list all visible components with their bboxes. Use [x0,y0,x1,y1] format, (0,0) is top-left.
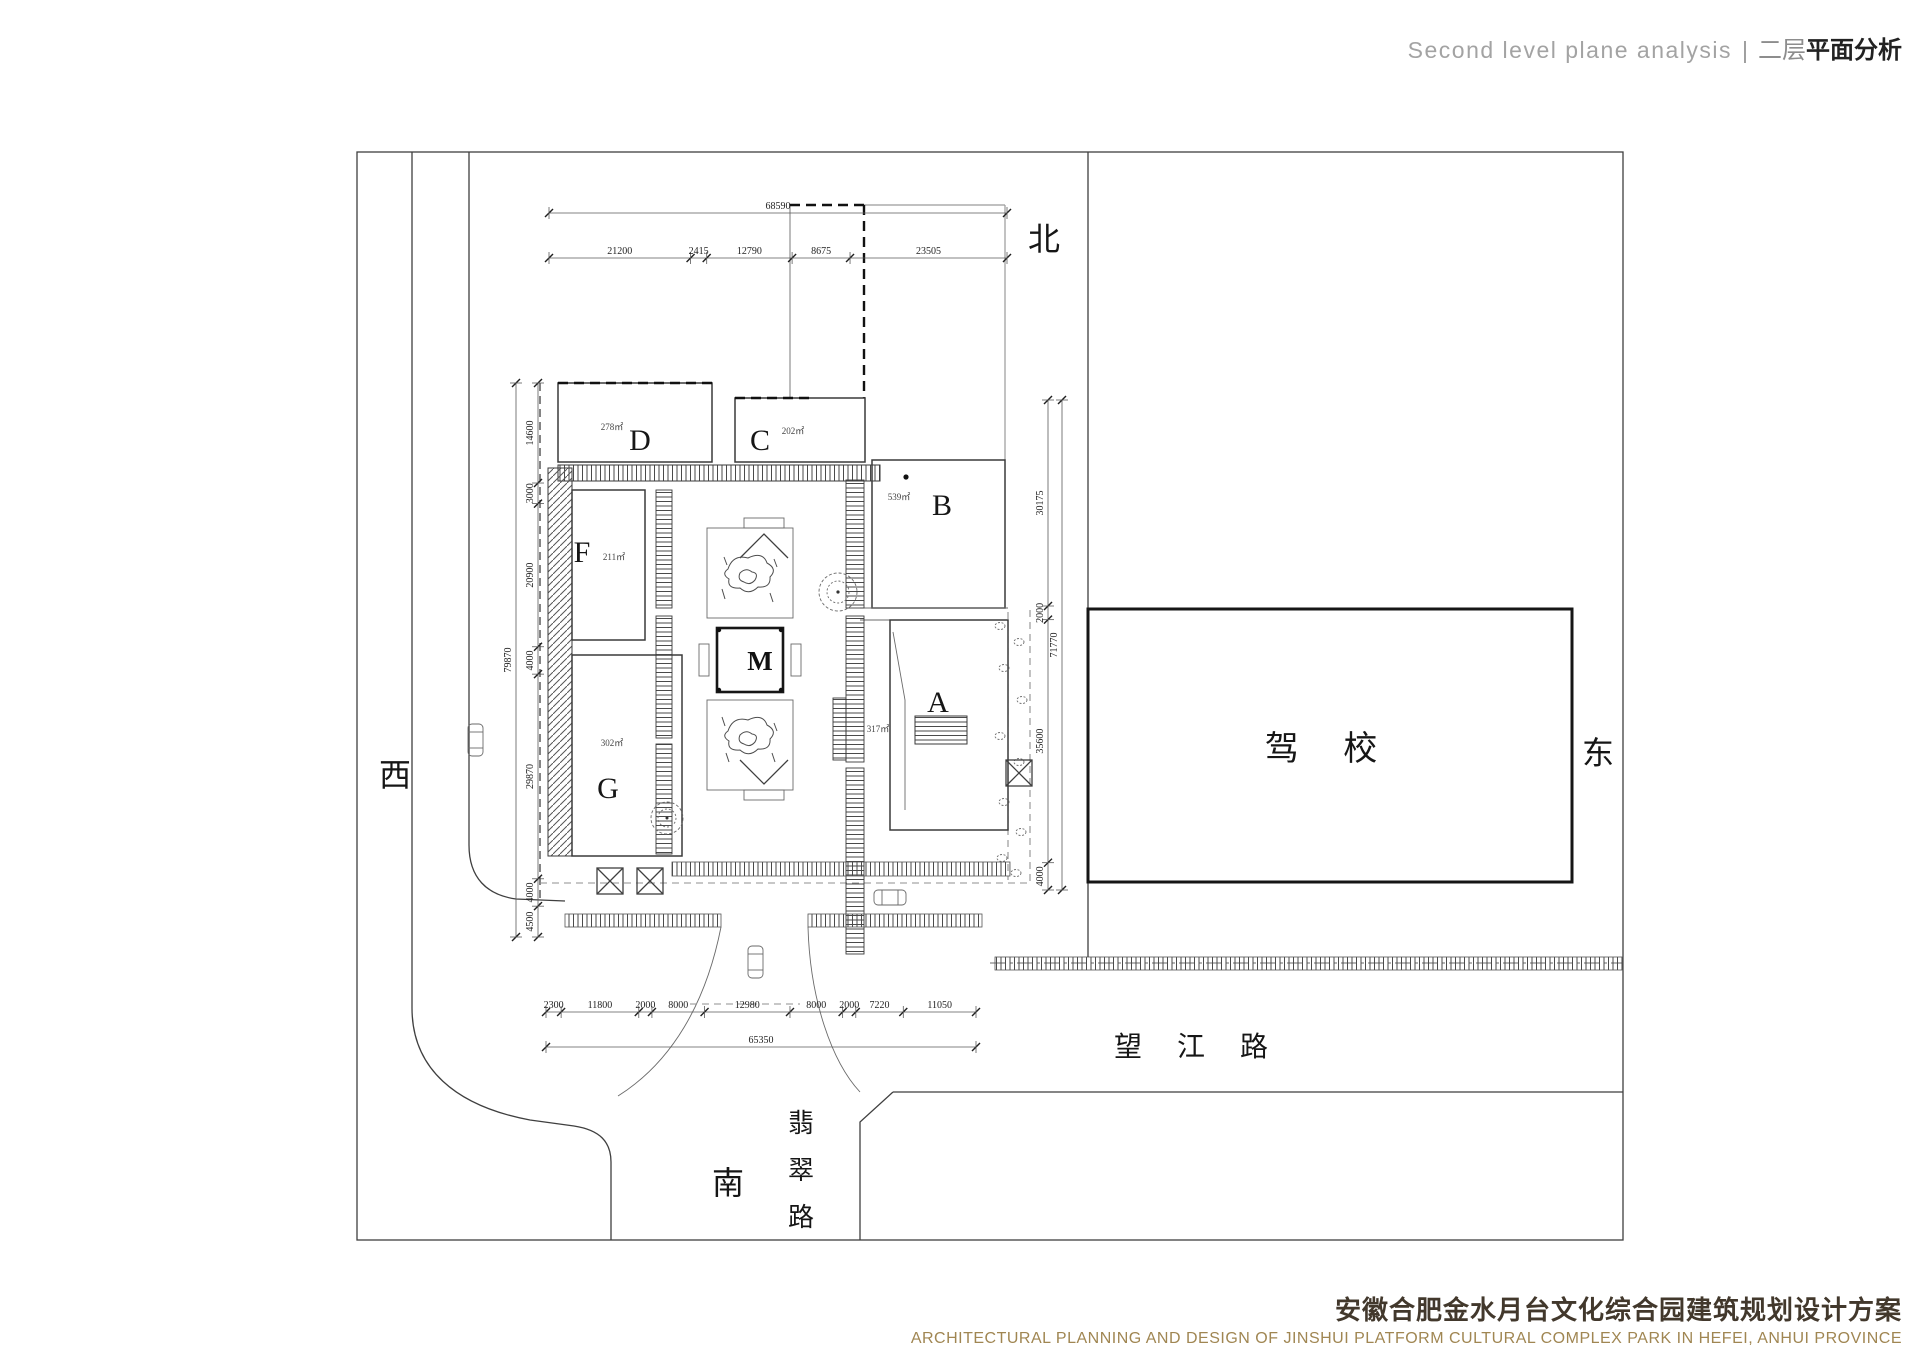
dimension-value: 4000 [525,650,536,670]
rock-garden-north [722,555,777,602]
building-d-label: D [629,424,651,457]
entry-arrow-south [740,760,788,784]
building-b-label: B [932,489,952,522]
rock-garden-north-panel [707,528,793,618]
compass-east: 东 [1582,735,1614,771]
building-f-label: F [574,536,591,569]
wangjiang-road-label: 望 江 路 [1114,1031,1282,1063]
compass-west: 西 [379,757,411,793]
dimension-chain-bottom: 2300118002000800012980800020007220110506… [542,1000,980,1053]
page: Second level plane analysis | 二层平面分析 [0,0,1920,1358]
car-south-road [748,946,763,978]
compass-south: 南 [712,1165,744,1201]
hedges [565,914,982,927]
building-b-area: 539㎡ [888,492,911,502]
dimension-value: 71770 [1049,633,1060,658]
dimension-value: 4000 [525,882,536,902]
west-wall-hatch [548,468,572,856]
building-a-area: 317㎡ [867,724,890,734]
feicui-road-label: 翡 翠 路 [788,1109,814,1232]
site-plan-drawing: 驾 校 D 278㎡ C 202㎡ [0,0,1920,1358]
dimension-value: 2300 [544,1000,564,1011]
building-c: C 202㎡ [735,398,865,462]
driving-school-label: 驾 校 [1265,730,1396,768]
dimension-value: 35600 [1035,729,1046,754]
svg-text:路: 路 [788,1203,814,1232]
dimension-value: 8000 [668,1000,688,1011]
dimension-value: 4500 [525,912,536,932]
courtyard: M [699,518,801,800]
building-c-label: C [750,424,770,457]
svg-text:翡: 翡 [788,1109,814,1138]
car-west-road [468,724,483,756]
dimension-value: 65350 [749,1035,774,1046]
building-d-area: 278㎡ [601,422,624,432]
building-a-label: A [927,686,949,719]
dimension-value: 7220 [870,1000,890,1011]
building-c-area: 202㎡ [782,426,805,436]
page-footer: 安徽合肥金水月台文化综合园建筑规划设计方案 ARCHITECTURAL PLAN… [911,1290,1902,1348]
dimension-chain-left: 146003000209004000298704000450079870 [503,379,544,941]
dimension-value: 11800 [588,1000,613,1011]
dimension-value: 2000 [635,1000,655,1011]
building-f-area: 211㎡ [603,552,625,562]
compass-north: 北 [1028,221,1060,257]
wangjiang-road [893,957,1623,1092]
dimension-value: 68590 [766,201,791,212]
svg-text:翠: 翠 [788,1156,814,1185]
dimension-value: 4000 [1035,866,1046,886]
stair-a [915,716,967,744]
driving-school-building: 驾 校 [1088,609,1572,882]
rock-garden-south [722,717,777,762]
dimension-value: 20900 [525,563,536,588]
feicui-road [618,927,893,1240]
dimension-value: 11050 [927,1000,952,1011]
pavilion-m: M [717,628,783,692]
dimension-value: 12980 [735,1000,760,1011]
footer-title-en: ARCHITECTURAL PLANNING AND DESIGN OF JIN… [911,1330,1902,1348]
north-arcade-hatch [558,465,880,481]
dimension-value: 2000 [1035,603,1046,623]
dimension-value: 2000 [839,1000,859,1011]
south-walk-hatch [672,862,1010,876]
entry-arrow-north [740,534,788,558]
footer-title-zh: 安徽合肥金水月台文化综合园建筑规划设计方案 [911,1290,1902,1327]
pavilion-m-label: M [747,646,772,676]
dimension-value: 8675 [811,246,831,257]
dimension-value: 21200 [607,246,632,257]
dimension-value: 30175 [1035,491,1046,516]
dimension-chain-top: 2120024151279086752350568590 [545,201,1011,264]
road-fence-hatch [995,957,1623,970]
building-d: D 278㎡ [558,383,712,462]
dimension-value: 3000 [525,483,536,503]
building-g-label: G [597,772,619,805]
dimension-value: 2415 [689,246,709,257]
dimension-value: 14600 [525,421,536,446]
dimension-value: 79870 [503,648,514,673]
building-f: F 211㎡ [572,490,645,640]
dimension-value: 23505 [916,246,941,257]
dimension-value: 12790 [737,246,762,257]
dimension-value: 29870 [525,764,536,789]
dimension-value: 8000 [806,1000,826,1011]
building-g-area: 302㎡ [601,738,624,748]
dimension-chain-right: 30175200035600400071770 [1035,396,1068,894]
building-a: A 317㎡ [860,608,1008,830]
car-east-gate [874,890,906,905]
